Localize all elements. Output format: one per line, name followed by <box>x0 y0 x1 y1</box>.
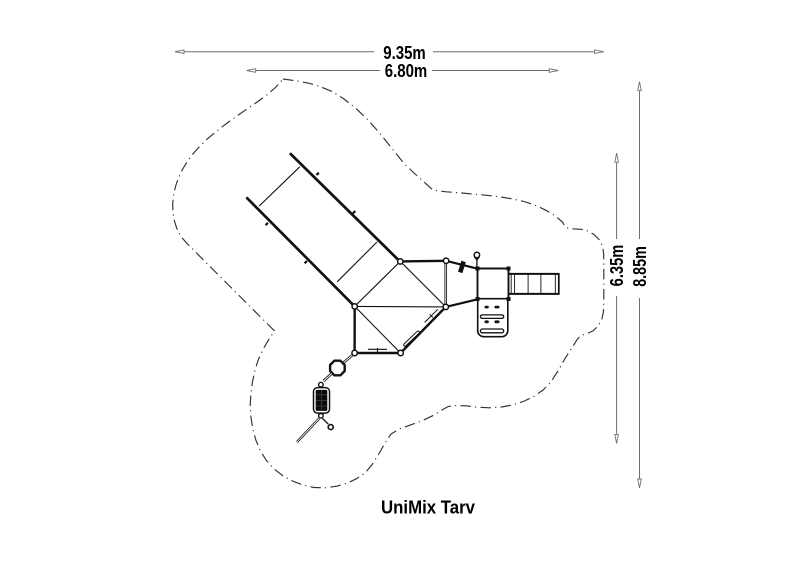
svg-text:8.85m: 8.85m <box>629 246 650 287</box>
svg-text:6.80m: 6.80m <box>385 60 428 81</box>
svg-text:6.35m: 6.35m <box>606 245 627 287</box>
svg-text:UniMix Tarv: UniMix Tarv <box>381 497 475 518</box>
